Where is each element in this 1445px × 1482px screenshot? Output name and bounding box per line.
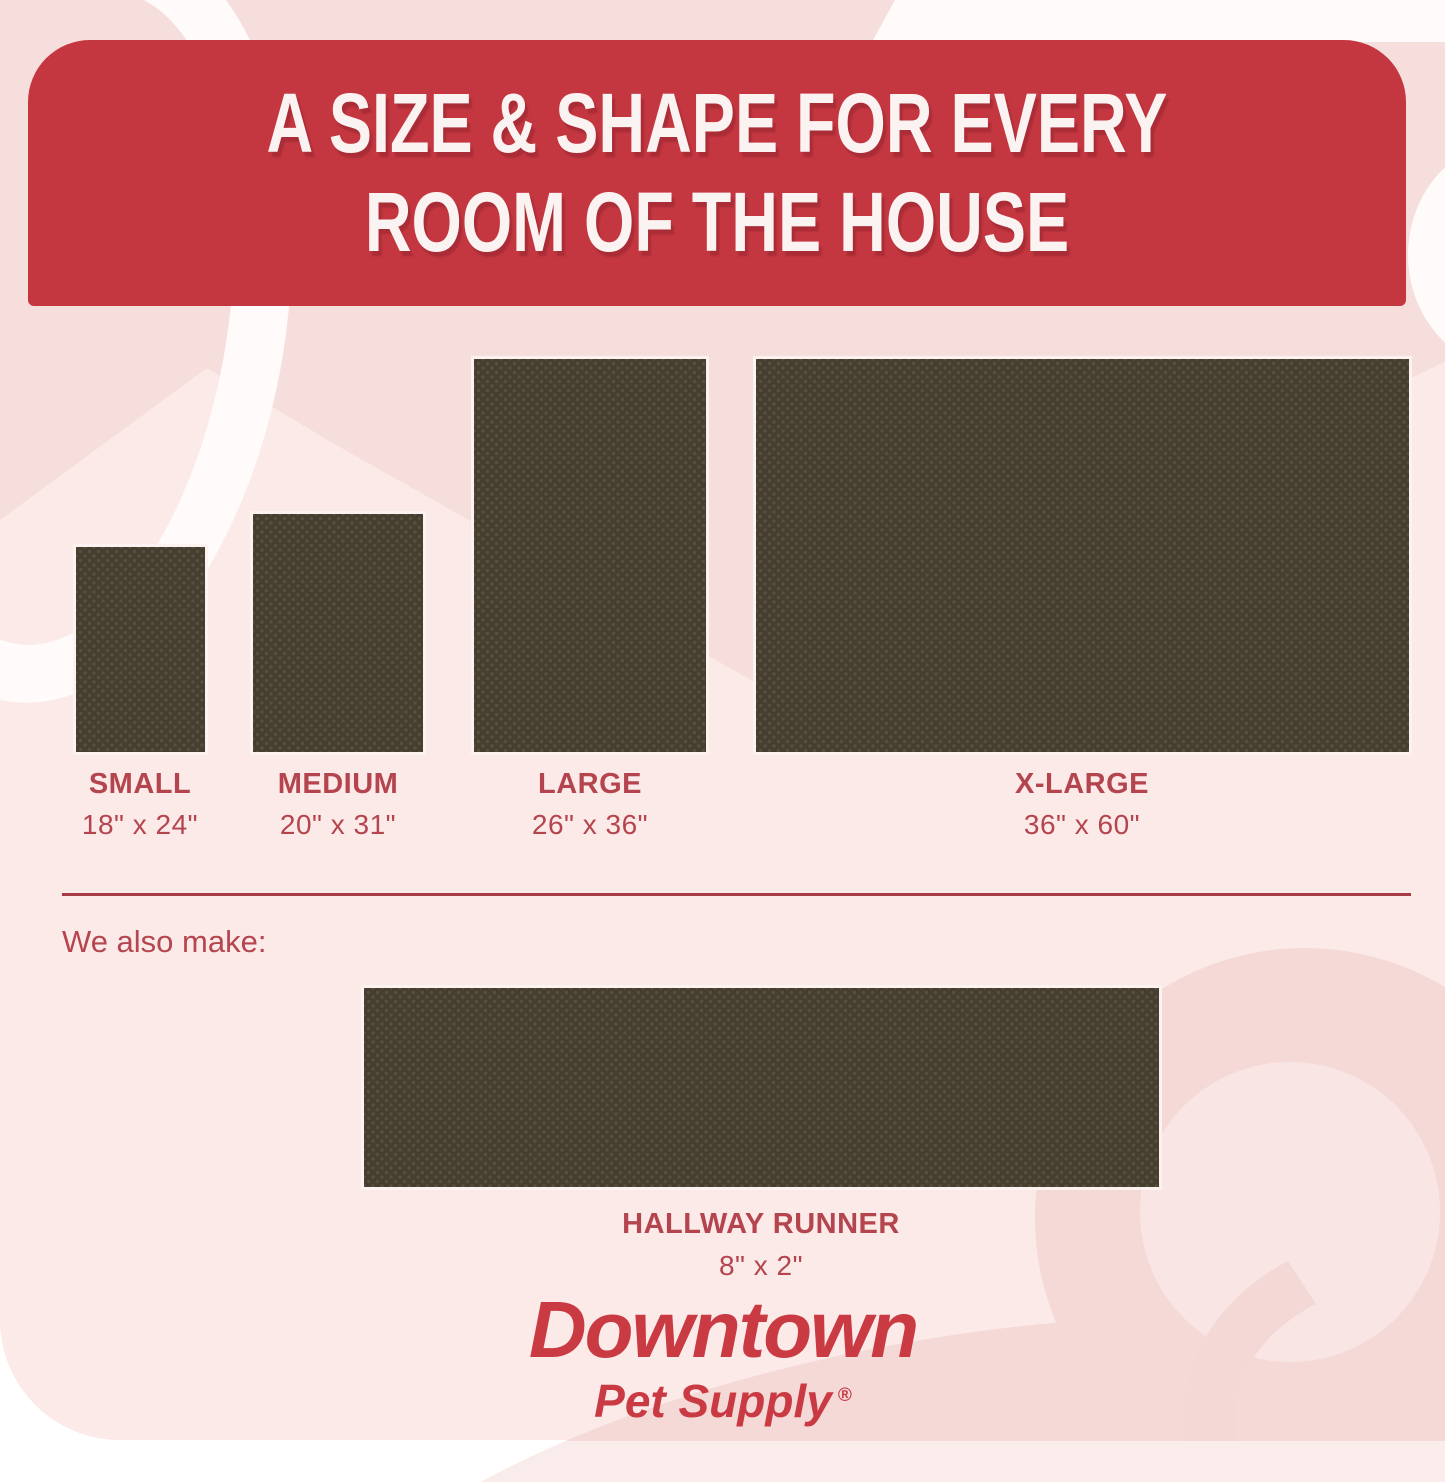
mat-swatch-hallway-runner <box>361 985 1162 1190</box>
brand-name-pet-supply-text: Pet Supply <box>594 1375 832 1427</box>
size-dimensions: 20" x 31" <box>208 809 468 841</box>
registered-trademark-symbol: ® <box>838 1385 852 1406</box>
size-name: X-LARGE <box>952 768 1212 801</box>
size-dimensions: 26" x 36" <box>460 809 720 841</box>
size-name: MEDIUM <box>208 768 468 801</box>
brand-name-downtown: Downtown <box>423 1290 1023 1370</box>
infographic-poster: A SIZE & SHAPE FOR EVERY ROOM OF THE HOU… <box>0 0 1445 1482</box>
background-bottom-fade <box>0 1441 1445 1482</box>
brand-logo: Downtown Pet Supply® <box>423 1290 1023 1428</box>
size-dimensions: 8" x 2" <box>561 1250 961 1282</box>
size-dimensions: 36" x 60" <box>952 809 1212 841</box>
background-white-band <box>872 0 1445 42</box>
size-label-medium: MEDIUM 20" x 31" <box>208 768 468 841</box>
mat-swatch-large <box>471 356 709 755</box>
page-title-line2: ROOM OF THE HOUSE <box>365 175 1069 269</box>
page-title: A SIZE & SHAPE FOR EVERY ROOM OF THE HOU… <box>267 74 1168 272</box>
mat-swatch-small <box>73 544 208 755</box>
size-label-hallway-runner: HALLWAY RUNNER 8" x 2" <box>561 1208 961 1282</box>
size-name: LARGE <box>460 768 720 801</box>
also-make-label: We also make: <box>62 924 266 960</box>
size-name: HALLWAY RUNNER <box>561 1208 961 1241</box>
header-banner: A SIZE & SHAPE FOR EVERY ROOM OF THE HOU… <box>28 40 1406 306</box>
mat-swatch-xlarge <box>753 356 1412 755</box>
size-label-large: LARGE 26" x 36" <box>460 768 720 841</box>
size-label-xlarge: X-LARGE 36" x 60" <box>952 768 1212 841</box>
section-divider <box>62 893 1411 896</box>
page-title-line1: A SIZE & SHAPE FOR EVERY <box>267 76 1168 170</box>
mat-swatch-medium <box>250 511 426 755</box>
brand-name-pet-supply: Pet Supply® <box>423 1374 1023 1428</box>
